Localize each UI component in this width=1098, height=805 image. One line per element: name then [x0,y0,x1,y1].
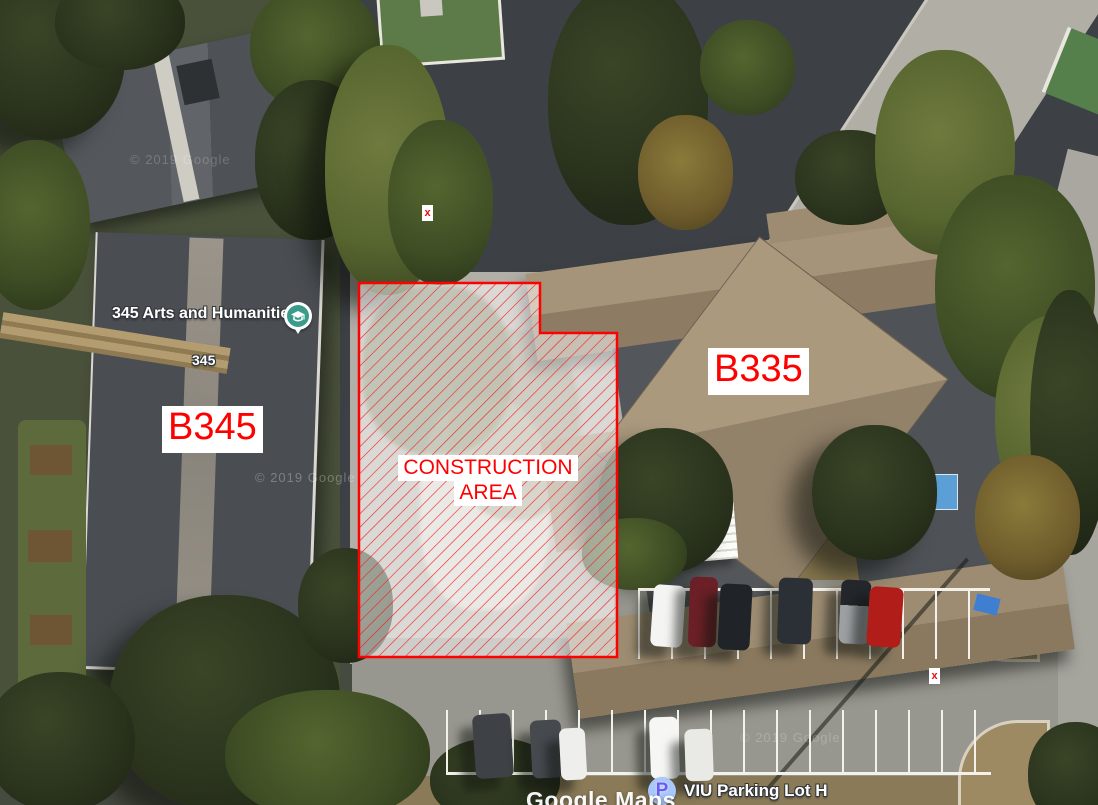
google-maps-watermark[interactable]: Google Maps [526,787,676,805]
x-marker: x [929,668,940,684]
satellite-map[interactable]: x x B345 B335 CONSTRUCTION AREA 345 Arts… [0,0,1098,805]
garden-bed [30,445,72,475]
tree [975,455,1080,580]
garden-bed [28,530,72,562]
blue-stair-rail [934,474,958,510]
b335-label: B335 [708,348,809,395]
school-pin-icon[interactable] [284,302,312,330]
tree [298,548,393,663]
copyright-watermark: © 2019 Google [130,152,231,167]
car-white-suv [649,717,680,780]
building-number-label: 345 [192,352,215,368]
car-black [717,583,752,651]
tree [388,120,493,285]
car-dark-gray [530,719,564,779]
building-green-roof-unit [419,0,443,17]
car-red [866,586,904,648]
x-marker: x [422,205,433,221]
poi-parking-name[interactable]: VIU Parking Lot H [684,781,828,801]
tree [582,518,687,590]
garden-bed [30,615,72,645]
tree [0,672,135,805]
car-dark-gray [777,577,813,644]
copyright-watermark: © 2019 Google [740,730,841,745]
b345-label: B345 [162,406,263,453]
car-dark-gray [472,713,514,779]
car-white [684,729,714,782]
construction-label-line1: CONSTRUCTION [398,455,577,481]
construction-label-line2: AREA [454,480,521,506]
construction-area-label: CONSTRUCTION AREA [359,455,617,506]
tree [638,115,733,230]
tree [812,425,937,560]
graduation-cap-icon [287,305,309,327]
poi-school[interactable]: 345 Arts and Humanities [112,305,298,323]
tree [700,20,795,115]
parking-stall-lines-bottom [446,710,991,775]
car-white [559,727,588,780]
copyright-watermark: © 2019 Google [255,470,356,485]
car-maroon [688,577,718,648]
tree [225,690,430,805]
poi-school-name[interactable]: 345 Arts and Humanities [112,305,298,322]
car-white [650,584,686,648]
